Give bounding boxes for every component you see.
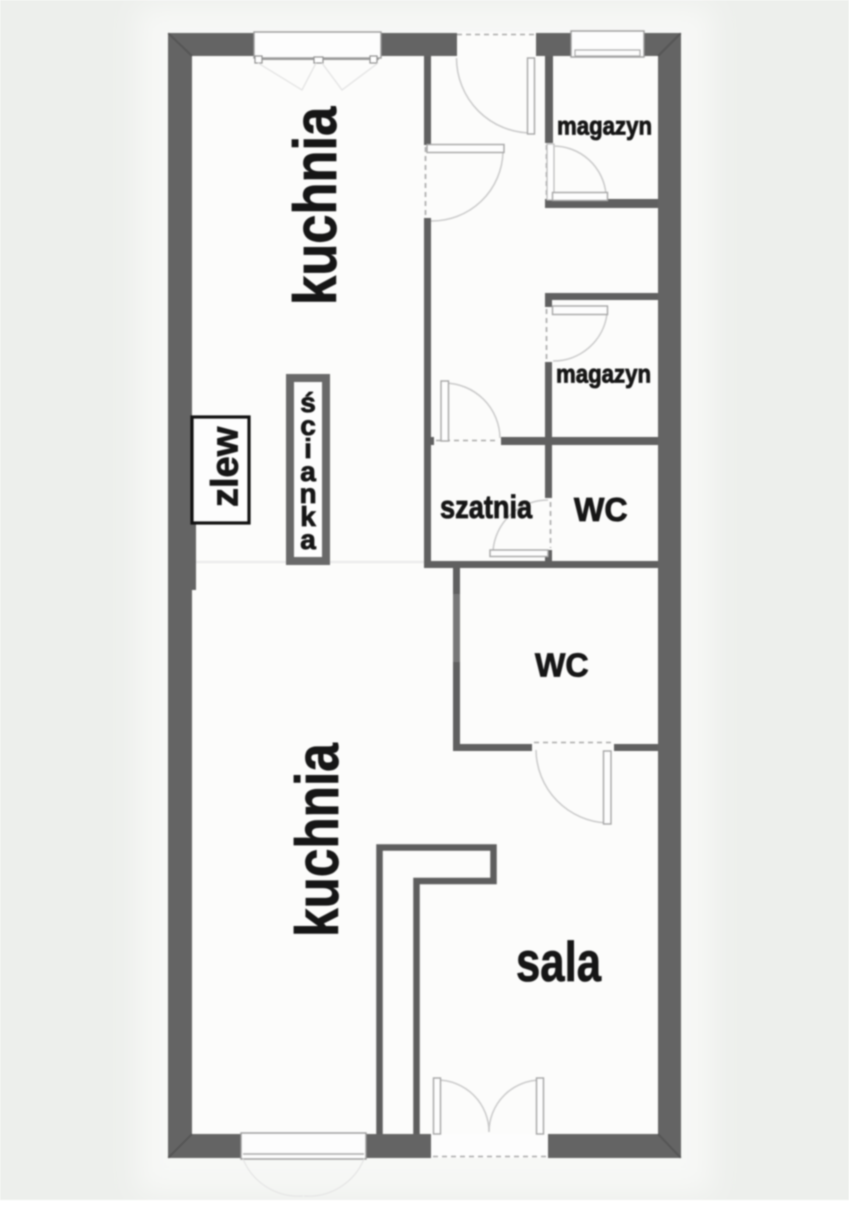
svg-text:kuchnia: kuchnia [283,742,351,937]
svg-text:magazyn: magazyn [557,112,652,141]
svg-text:WC: WC [535,646,589,683]
svg-text:a: a [300,524,316,555]
svg-text:zlew: zlew [205,426,247,507]
svg-text:sala: sala [516,931,602,993]
svg-text:szatnia: szatnia [440,490,533,526]
svg-text:kuchnia: kuchnia [282,106,349,305]
svg-text:WC: WC [574,491,628,528]
svg-text:magazyn: magazyn [556,360,651,389]
